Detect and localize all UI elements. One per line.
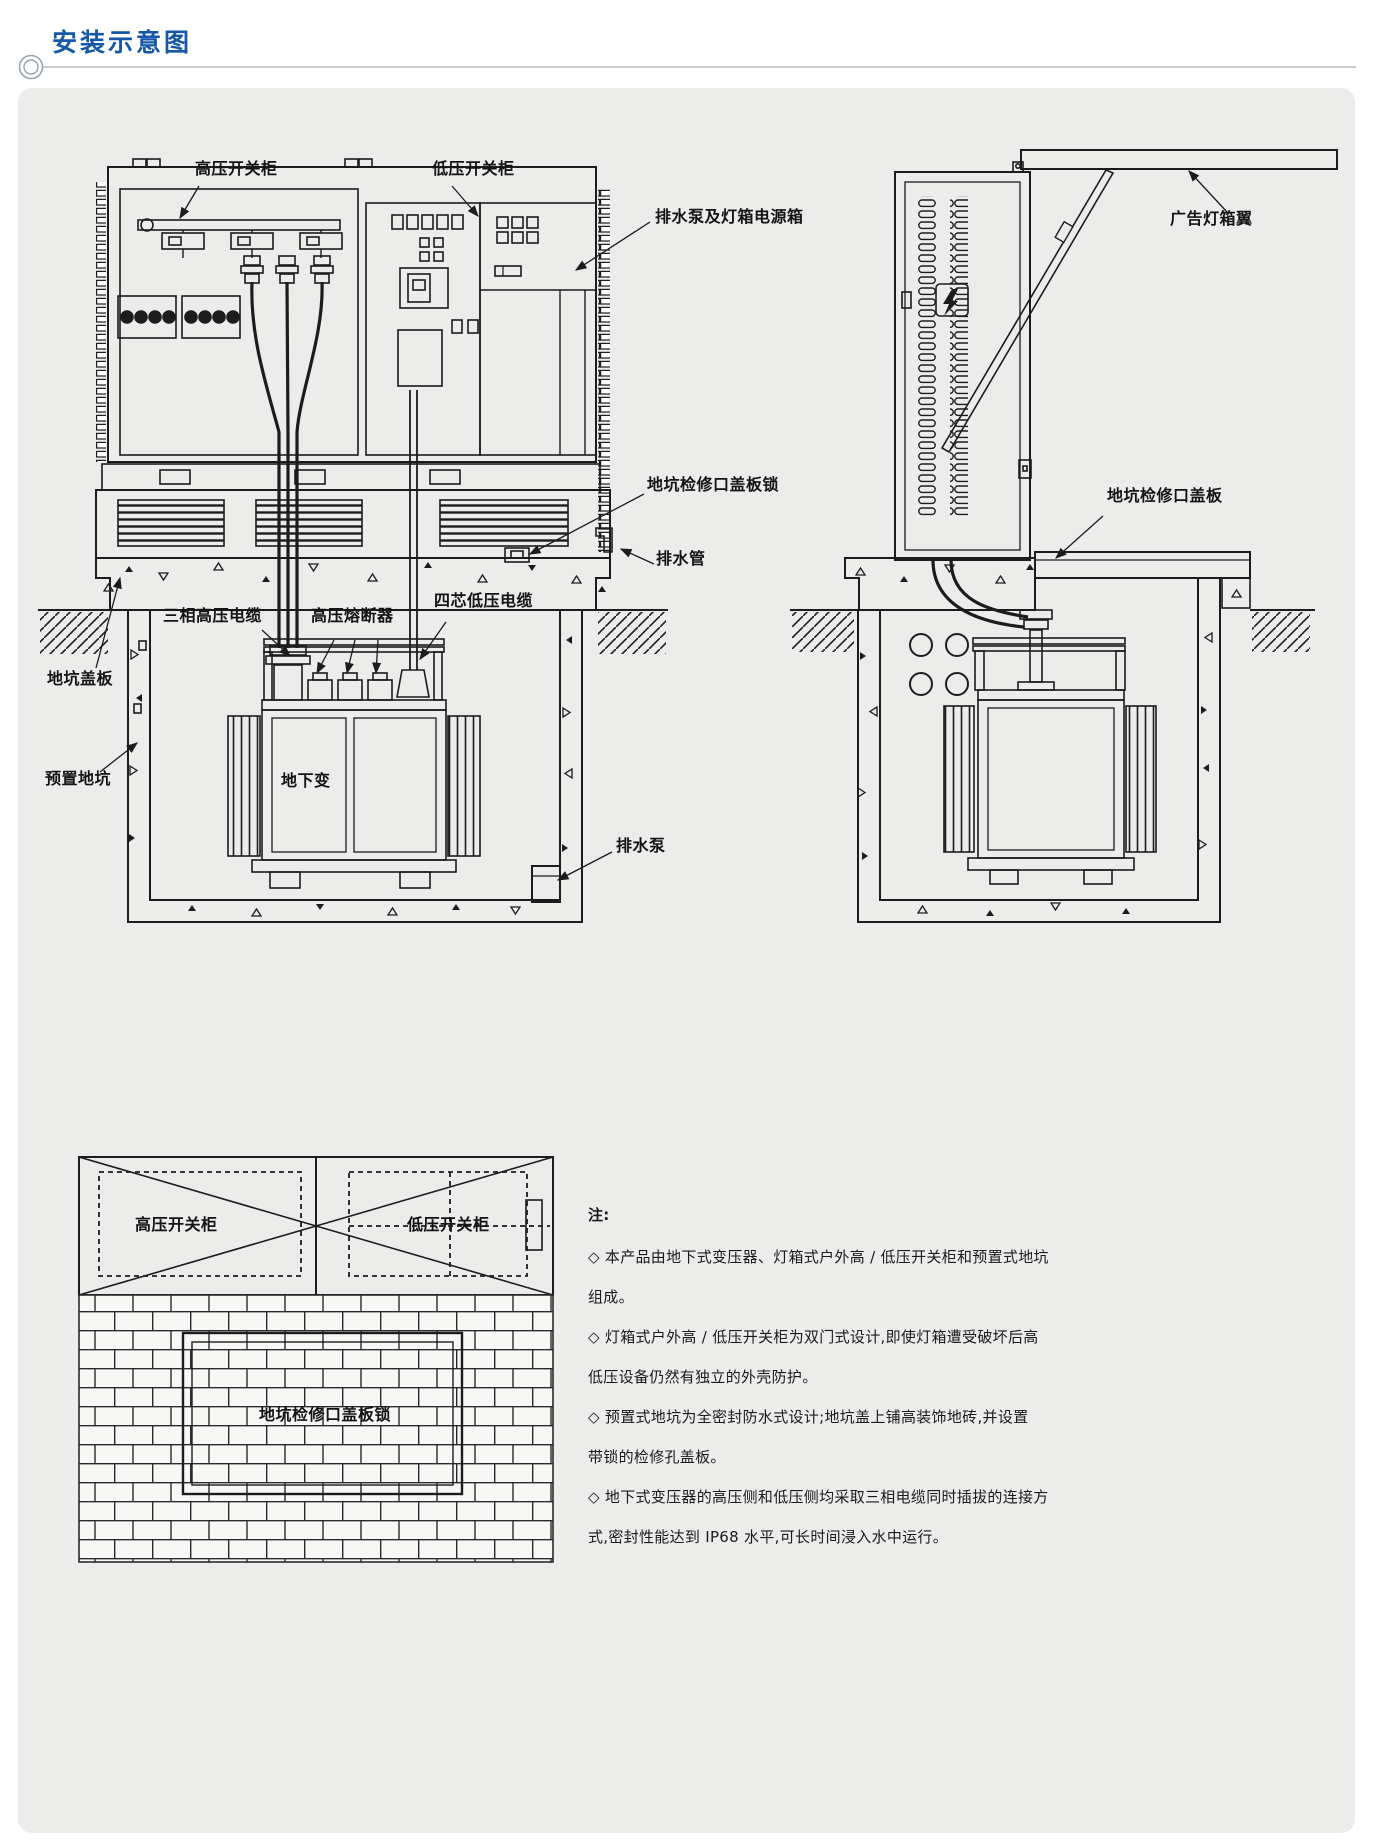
- catalog-page: 安装示意图 高压开关柜 低压开关柜 排水泵及灯箱电源箱 地坑检修口盖板锁 排水管…: [0, 0, 1373, 1848]
- label-underground-transformer: 地下变: [281, 773, 331, 789]
- note-line-1: ◇ 本产品由地下式变压器、灯箱式户外高 / 低压开关柜和预置式地坑: [588, 1248, 1049, 1268]
- notes-heading: 注:: [588, 1206, 610, 1226]
- label-pit-hatch-cover: 地坑检修口盖板: [1107, 488, 1223, 504]
- label-drain-pipe: 排水管: [656, 551, 706, 567]
- label-hv-cabinet-front: 高压开关柜: [195, 161, 278, 177]
- pit-hatch-lock-shape: [505, 548, 529, 562]
- label-hv-cabinet-top: 高压开关柜: [135, 1217, 218, 1233]
- note-line-8: 式,密封性能达到 IP68 水平,可长时间浸入水中运行。: [588, 1528, 948, 1548]
- label-precast-pit: 预置地坑: [45, 771, 111, 787]
- note-line-3: ◇ 灯箱式户外高 / 低压开关柜为双门式设计,即使灯箱遭受破坏后高: [588, 1328, 1039, 1348]
- installation-diagram-artwork: [0, 0, 1373, 1848]
- note-line-2: 组成。: [588, 1288, 634, 1308]
- note-line-7: ◇ 地下式变压器的高压侧和低压侧均采取三相电缆同时插拔的连接方: [588, 1488, 1049, 1508]
- note-line-4: 低压设备仍然有独立的外壳防护。: [588, 1368, 818, 1388]
- label-pit-hatch-lock-top: 地坑检修口盖板锁: [259, 1407, 391, 1423]
- left-corrugation: [96, 182, 106, 462]
- label-lv-cabinet-front: 低压开关柜: [432, 161, 515, 177]
- label-lv-cabinet-top: 低压开关柜: [407, 1217, 490, 1233]
- note-line-5: ◇ 预置式地坑为全密封防水式设计;地坑盖上铺高装饰地砖,并设置: [588, 1408, 1028, 1428]
- page-title: 安装示意图: [52, 30, 192, 55]
- label-drain-pump: 排水泵: [616, 838, 666, 854]
- label-ad-wing: 广告灯箱翼: [1170, 211, 1253, 227]
- right-corrugation: [598, 188, 610, 552]
- brick-wall: [79, 1295, 553, 1562]
- label-pit-cover: 地坑盖板: [47, 671, 113, 687]
- label-hv-cable: 三相高压电缆: [163, 608, 262, 624]
- label-pit-hatch-lock-front: 地坑检修口盖板锁: [647, 477, 779, 493]
- diagram-panel: [18, 88, 1355, 1833]
- label-hv-fuse: 高压熔断器: [311, 608, 394, 624]
- note-line-6: 带锁的检修孔盖板。: [588, 1448, 726, 1468]
- header-rule: [20, 56, 1357, 79]
- label-pump-power-box: 排水泵及灯箱电源箱: [655, 209, 804, 225]
- label-lv-cable: 四芯低压电缆: [434, 593, 533, 609]
